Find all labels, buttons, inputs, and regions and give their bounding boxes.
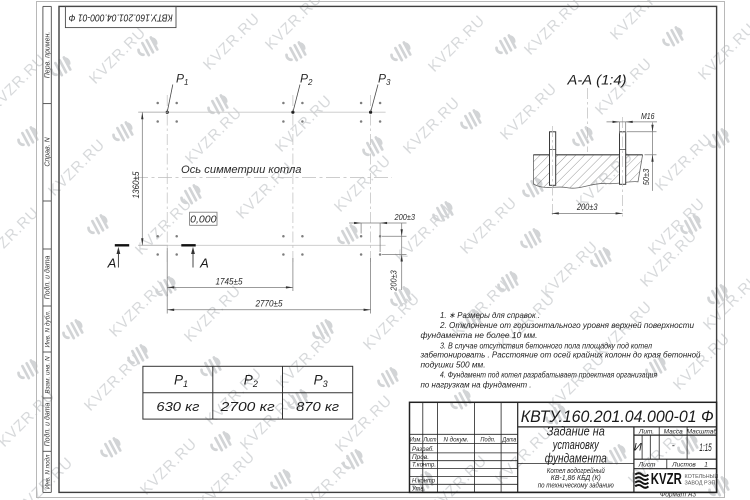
svg-text:Утв.: Утв. [411, 485, 425, 492]
svg-text:2770±5: 2770±5 [255, 299, 284, 309]
svg-text:630 кг: 630 кг [156, 400, 199, 414]
svg-text:КВТУ.160.201.04.000-01 Ф: КВТУ.160.201.04.000-01 Ф [69, 11, 173, 22]
svg-text:KVZR.RU: KVZR.RU [272, 92, 336, 156]
svg-text:KVZR.RU: KVZR.RU [425, 12, 489, 76]
svg-text:N докум.: N докум. [444, 436, 469, 444]
svg-text:KVZR.RU: KVZR.RU [106, 277, 170, 341]
svg-text:1360±5: 1360±5 [131, 171, 141, 199]
svg-text:подушки 500 мм.: подушки 500 мм. [421, 360, 486, 370]
svg-text:2. Отклонение от горизонтально: 2. Отклонение от горизонтального уровня … [439, 320, 694, 330]
svg-text:КВ-1,86 КБД (К): КВ-1,86 КБД (К) [551, 475, 601, 482]
svg-text:Лист: Лист [638, 462, 656, 469]
svg-text:-: - [672, 441, 675, 451]
svg-text:Инв. N подл: Инв. N подл [45, 454, 52, 489]
svg-text:Лит.: Лит. [638, 428, 654, 435]
svg-text:P3: P3 [314, 372, 328, 389]
svg-text:P1: P1 [176, 72, 188, 88]
svg-text:Лист: Лист [423, 437, 437, 444]
svg-text:KVZR.RU: KVZR.RU [700, 270, 750, 334]
svg-text:Справ. N: Справ. N [45, 136, 52, 166]
svg-text:Т.контр.: Т.контр. [412, 462, 436, 469]
svg-text:Подп. и дата: Подп. и дата [44, 402, 52, 446]
svg-text:200±3: 200±3 [576, 202, 598, 212]
svg-text:KVZR.RU: KVZR.RU [695, 20, 750, 84]
svg-text:Взам. инв. N: Взам. инв. N [45, 356, 52, 394]
svg-text:забетонировать . Расстояние от: забетонировать . Расстояние от осей край… [420, 350, 701, 360]
svg-text:1. ∗ Размеры для справок .: 1. ∗ Размеры для справок . [440, 310, 540, 320]
svg-text:200±3: 200±3 [394, 212, 416, 222]
svg-text:ЗАВОД РЭП: ЗАВОД РЭП [685, 480, 716, 486]
svg-text:KVZR.RU: KVZR.RU [200, 10, 264, 74]
svg-text:А-А (1:4): А-А (1:4) [566, 72, 626, 88]
svg-text:Листов: Листов [671, 462, 696, 469]
svg-text:870 кг: 870 кг [296, 400, 339, 414]
svg-text:установку: установку [552, 438, 599, 452]
svg-text:КОТЕЛЬНЫЙ: КОТЕЛЬНЫЙ [685, 472, 719, 480]
svg-text:P1: P1 [174, 372, 188, 389]
svg-text:KVZR.RU: KVZR.RU [0, 51, 50, 115]
svg-text:KVZR.RU: KVZR.RU [181, 282, 245, 346]
svg-text:Разраб.: Разраб. [412, 445, 434, 453]
svg-text:Н.контр: Н.контр [412, 478, 435, 485]
svg-text:фундамента не более 10 мм.: фундамента не более 10 мм. [421, 330, 538, 340]
svg-text:фундамента: фундамента [545, 451, 607, 465]
svg-text:KVZR.RU: KVZR.RU [137, 435, 201, 499]
svg-text:KVZR.RU: KVZR.RU [332, 392, 396, 456]
svg-text:KVZR: KVZR [651, 471, 682, 488]
svg-text:А: А [199, 256, 209, 271]
svg-text:4. Фундамент под котел разраба: 4. Фундамент под котел разрабатывает про… [440, 370, 657, 380]
svg-text:KVZR.RU: KVZR.RU [521, 0, 585, 59]
svg-text:1: 1 [704, 462, 708, 469]
svg-text:P2: P2 [300, 72, 313, 88]
svg-text:Перв. примен.: Перв. примен. [45, 32, 52, 79]
svg-text:Пров.: Пров. [412, 454, 429, 461]
svg-text:А: А [107, 256, 117, 271]
svg-text:50±3: 50±3 [641, 168, 651, 185]
svg-text:Дата: Дата [502, 437, 517, 444]
svg-text:по техническому заданию: по техническому заданию [538, 482, 615, 490]
svg-text:2700 кг: 2700 кг [219, 400, 274, 414]
svg-text:0,000: 0,000 [190, 214, 216, 226]
svg-text:Масштаб: Масштаб [687, 427, 718, 435]
svg-text:KVZR.RU: KVZR.RU [400, 94, 464, 158]
svg-text:KVZR.RU: KVZR.RU [81, 351, 145, 415]
svg-text:KVZR.RU: KVZR.RU [86, 24, 150, 88]
svg-text:М16: М16 [641, 111, 655, 121]
svg-text:Масса: Масса [664, 428, 684, 435]
svg-text:1745±5: 1745±5 [216, 276, 244, 286]
svg-text:КВТУ.160.201.04.000-01 Ф: КВТУ.160.201.04.000-01 Ф [521, 408, 714, 426]
svg-text:KVZR.RU: KVZR.RU [45, 136, 109, 200]
svg-text:Изм.: Изм. [410, 437, 422, 444]
svg-text:Ось симметрии котла: Ось симметрии котла [181, 164, 302, 176]
svg-text:Подп.: Подп. [480, 436, 495, 444]
svg-text:Инв. N дубл.: Инв. N дубл. [44, 311, 52, 348]
svg-text:Формат А3: Формат А3 [660, 490, 697, 499]
svg-text:KVZR.RU: KVZR.RU [132, 195, 196, 259]
svg-text:И: И [634, 442, 642, 454]
svg-text:Задание на: Задание на [547, 424, 605, 438]
svg-text:по нагрузкам на фундамент .: по нагрузкам на фундамент . [421, 379, 532, 389]
svg-text:KVZR.RU: KVZR.RU [457, 194, 521, 258]
svg-text:P3: P3 [378, 72, 391, 88]
svg-text:200±3: 200±3 [388, 270, 398, 292]
svg-text:KVZR.RU: KVZR.RU [331, 152, 395, 216]
svg-text:Подп. и дата: Подп. и дата [44, 255, 52, 299]
svg-text:1:15: 1:15 [699, 442, 712, 454]
svg-text:Котел водогрейный: Котел водогрейный [547, 467, 605, 475]
svg-text:KVZR.RU: KVZR.RU [652, 131, 716, 195]
